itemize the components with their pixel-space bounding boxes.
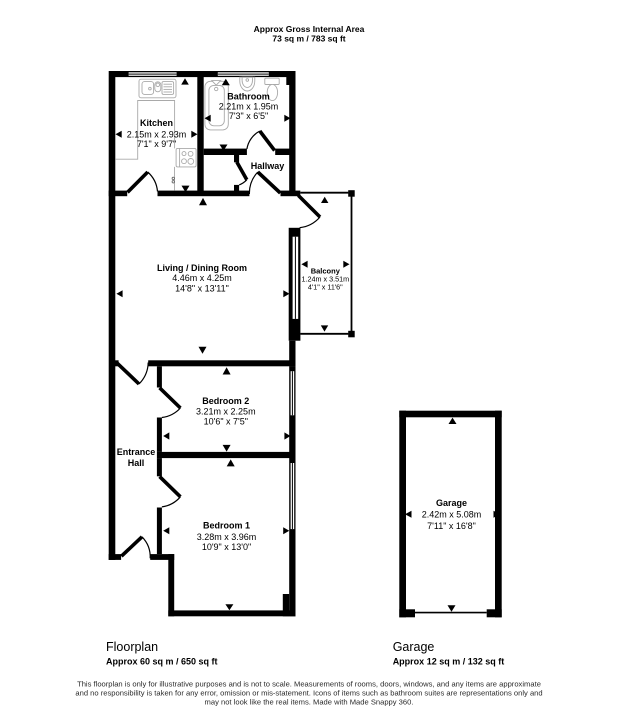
svg-text:Approx Gross Internal Area: Approx Gross Internal Area [254, 24, 365, 34]
svg-text:Approx 60 sq m / 650 sq ft: Approx 60 sq m / 650 sq ft [106, 657, 218, 667]
svg-text:Garage: Garage [393, 640, 435, 654]
svg-text:3.28m x 3.96m: 3.28m x 3.96m [197, 532, 257, 542]
svg-text:3.21m x 2.25m: 3.21m x 2.25m [196, 406, 256, 416]
svg-text:10'6" x 7'5": 10'6" x 7'5" [204, 416, 248, 426]
svg-text:7'1" x 9'7": 7'1" x 9'7" [137, 139, 176, 149]
svg-text:2.42m x 5.08m: 2.42m x 5.08m [422, 510, 482, 520]
svg-text:7'3" x 6'5": 7'3" x 6'5" [229, 111, 268, 121]
svg-text:This floorplan is only for ill: This floorplan is only for illustrative … [77, 680, 541, 689]
svg-text:2.21m x 1.95m: 2.21m x 1.95m [219, 101, 279, 111]
svg-text:Hallway: Hallway [251, 161, 285, 171]
svg-text:Bedroom 1: Bedroom 1 [203, 520, 250, 530]
svg-text:4.46m x 4.25m: 4.46m x 4.25m [172, 273, 232, 283]
svg-text:Bedroom 2: Bedroom 2 [202, 396, 249, 406]
svg-text:7'11" x 16'8": 7'11" x 16'8" [427, 521, 476, 531]
svg-text:may not look like the real ite: may not look like the real items. Made w… [205, 698, 414, 707]
svg-text:73 sq m / 783 sq ft: 73 sq m / 783 sq ft [272, 34, 345, 44]
svg-text:and no responsibility is taken: and no responsibility is taken for any e… [75, 689, 542, 698]
svg-text:Garage: Garage [436, 498, 467, 508]
svg-text:2.15m x 2.93m: 2.15m x 2.93m [127, 130, 187, 140]
svg-text:Kitchen: Kitchen [140, 118, 173, 128]
svg-text:Living / Dining Room: Living / Dining Room [157, 263, 247, 273]
svg-text:Hall: Hall [128, 458, 145, 468]
svg-text:Floorplan: Floorplan [106, 640, 158, 654]
svg-text:14'8" x 13'11": 14'8" x 13'11" [175, 283, 229, 293]
svg-text:Approx 12 sq m / 132 sq ft: Approx 12 sq m / 132 sq ft [393, 657, 505, 667]
svg-text:Bathroom: Bathroom [227, 92, 270, 102]
svg-text:Entrance: Entrance [117, 447, 156, 457]
svg-text:10'9" x 13'0": 10'9" x 13'0" [202, 542, 251, 552]
svg-text:4'1" x 11'6": 4'1" x 11'6" [308, 282, 343, 291]
